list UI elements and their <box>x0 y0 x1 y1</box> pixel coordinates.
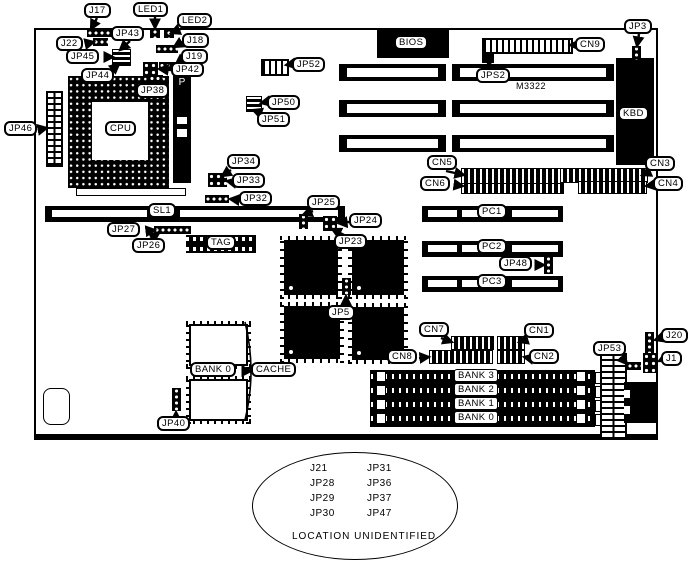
battery <box>43 388 70 425</box>
isa-slot-notch <box>347 139 438 148</box>
motherboard-diagram: AMP <box>0 0 695 564</box>
pci-notch <box>462 210 478 217</box>
unidentified-item: JP29 <box>310 493 335 504</box>
sl1-notch <box>180 210 338 217</box>
label-bios: BIOS <box>394 35 428 50</box>
label-jp40: JP40 <box>157 416 190 431</box>
label-pc2: PC2 <box>477 239 507 254</box>
label-j1: J1 <box>661 351 682 366</box>
jp24-jp23-connector <box>323 216 337 231</box>
isa-slot-segment <box>339 100 446 117</box>
label-cn7: CN7 <box>419 322 449 337</box>
label-jp45: JP45 <box>66 49 99 64</box>
label-kbd: KBD <box>618 106 649 121</box>
j1-connector <box>643 353 658 373</box>
label-jp32: JP32 <box>239 191 272 206</box>
simm-clip <box>576 413 586 424</box>
label-bank2: BANK 2 <box>454 383 498 396</box>
jp27-jp26-connector <box>154 226 191 234</box>
label-jp26: JP26 <box>132 238 165 253</box>
label-cn6: CN6 <box>420 176 450 191</box>
label-jp48: JP48 <box>499 256 532 271</box>
label-cn9: CN9 <box>575 37 605 52</box>
pci-notch <box>512 245 558 252</box>
jp3-component <box>632 46 641 60</box>
led2-component <box>164 30 174 38</box>
amp-regulator: AMP <box>173 62 191 183</box>
unidentified-note: LOCATION UNIDENTIFIED <box>292 531 436 542</box>
isa-slot-notch <box>347 68 438 77</box>
cn4-connector <box>578 181 647 194</box>
pci-notch <box>462 245 478 252</box>
jp53-jumper <box>627 362 641 370</box>
amp-stripe <box>177 117 187 124</box>
label-bank3: BANK 3 <box>454 369 498 382</box>
sl1-notch <box>52 210 147 217</box>
edge-port <box>624 382 658 423</box>
label-tag: TAG <box>206 235 236 250</box>
unidentified-ellipse <box>252 452 458 560</box>
isa-slot-segment <box>452 100 614 117</box>
j22-connector <box>93 38 108 46</box>
isa-slot-segment <box>339 135 446 152</box>
label-jp38: JP38 <box>136 83 169 98</box>
label-cn5: CN5 <box>427 155 457 170</box>
label-j17: J17 <box>84 3 111 18</box>
cn1-connector <box>497 336 525 350</box>
pci-notch <box>428 245 457 252</box>
label-jp27: JP27 <box>107 222 140 237</box>
pci-notch <box>428 280 457 287</box>
label-jp44: JP44 <box>81 68 114 83</box>
unidentified-item: JP36 <box>367 478 392 489</box>
label-jp50: JP50 <box>267 95 300 110</box>
pci-notch <box>428 210 457 217</box>
label-sl1: SL1 <box>148 203 176 218</box>
simm-clip <box>576 385 586 396</box>
cn2-connector <box>497 350 525 364</box>
simm-clip <box>576 399 586 410</box>
j18-connector <box>156 45 178 53</box>
label-jp5: JP5 <box>327 305 355 320</box>
isa-slot-notch <box>460 139 606 148</box>
jp40-connector <box>172 388 181 411</box>
label-cn1: CN1 <box>524 323 554 338</box>
cn8-connector <box>429 350 493 364</box>
isa-slot-notch <box>347 104 438 113</box>
label-cn4: CN4 <box>653 176 683 191</box>
amp-stripe <box>177 129 187 137</box>
label-jp24: JP24 <box>349 213 382 228</box>
unidentified-item: JP47 <box>367 508 392 519</box>
pci-notch <box>462 280 478 287</box>
label-cn8: CN8 <box>387 349 417 364</box>
jp32-connector <box>205 195 229 203</box>
jp48-connector <box>544 256 553 274</box>
cn7-connector <box>451 336 494 350</box>
label-jp34: JP34 <box>227 154 260 169</box>
cache-chip <box>189 379 248 421</box>
label-j20: J20 <box>661 328 688 343</box>
label-bank0: BANK 0 <box>454 411 498 424</box>
jp25-connector <box>299 214 308 229</box>
label-pc3: PC3 <box>477 274 507 289</box>
label-jp52: JP52 <box>292 57 325 72</box>
label-jp43: JP43 <box>111 26 144 41</box>
jp42-connector <box>143 62 158 76</box>
label-cn3: CN3 <box>645 156 675 171</box>
pci-notch <box>512 210 558 217</box>
cache-chip <box>189 324 248 366</box>
isa-slot-segment <box>339 64 446 81</box>
label-cn2: CN2 <box>529 349 559 364</box>
isa-slot-segment <box>452 135 614 152</box>
label-jp46: JP46 <box>4 121 37 136</box>
pci-notch <box>512 280 558 287</box>
jp38-connector <box>149 75 163 82</box>
label-cache: CACHE <box>251 362 296 377</box>
unidentified-item: JP28 <box>310 478 335 489</box>
simm-clip <box>376 413 386 424</box>
simm-clip <box>376 399 386 410</box>
label-jp51: JP51 <box>257 112 290 127</box>
cpu-lever <box>76 188 186 196</box>
jp52-connector <box>261 59 289 76</box>
jp5-connector <box>342 278 351 295</box>
label-j18: J18 <box>182 33 209 48</box>
unidentified-item: JP37 <box>367 493 392 504</box>
unidentified-item: J21 <box>310 463 328 474</box>
unidentified-item: JP30 <box>310 508 335 519</box>
jp34-jp33-connector <box>208 173 227 187</box>
label-jp25: JP25 <box>307 195 340 210</box>
jp50-jp51-connector <box>246 96 262 112</box>
label-cache-bank0: BANK 0 <box>190 362 236 377</box>
label-jp33: JP33 <box>232 173 265 188</box>
simm-clip <box>576 371 586 382</box>
j17-connector <box>87 29 113 37</box>
label-jp42: JP42 <box>171 62 204 77</box>
cn6-connector <box>461 183 564 194</box>
j20-connector <box>645 332 654 354</box>
label-led2: LED2 <box>177 13 212 28</box>
isa-slot-notch <box>460 104 606 113</box>
label-jp53: JP53 <box>593 341 626 356</box>
unidentified-item: JP31 <box>367 463 392 474</box>
label-m3322: M3322 <box>516 81 546 91</box>
cn9-connector <box>482 38 573 54</box>
jp43-jp45-jp44-block <box>112 49 131 66</box>
label-led1: LED1 <box>133 2 168 17</box>
jp46-connector <box>46 91 63 167</box>
qfp-chip <box>284 240 338 295</box>
label-cpu: CPU <box>105 121 136 136</box>
label-pc1: PC1 <box>477 204 507 219</box>
label-jp23: JP23 <box>334 234 367 249</box>
simm-clip <box>376 385 386 396</box>
label-jps2: JPS2 <box>476 68 510 83</box>
led1-component <box>150 29 160 38</box>
label-jp3: JP3 <box>624 19 652 34</box>
simm-clip <box>376 371 386 382</box>
jp53-power-connector <box>600 353 627 439</box>
label-bank1: BANK 1 <box>454 397 498 410</box>
